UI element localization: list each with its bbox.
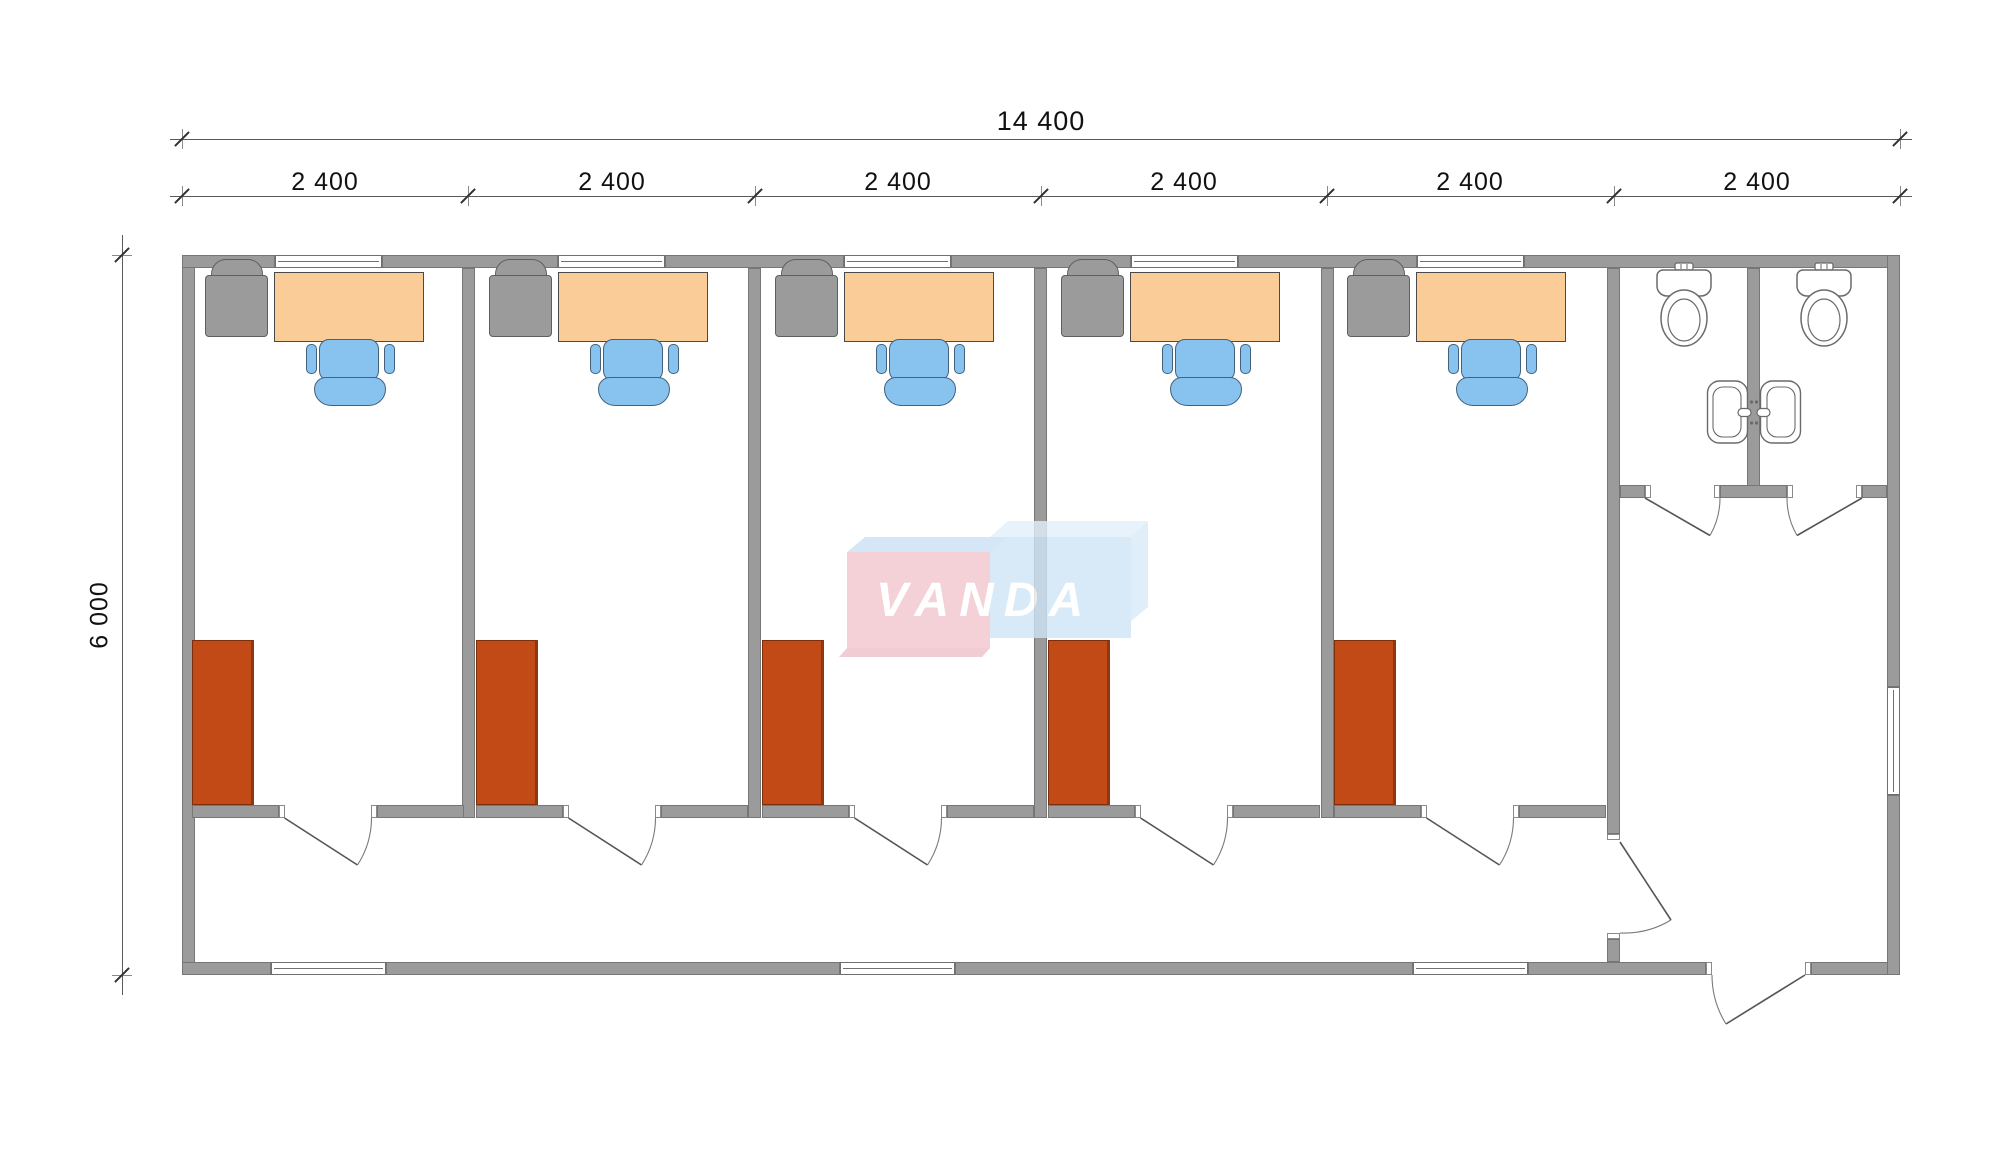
office-chair-back — [598, 377, 670, 406]
side-chair — [1061, 275, 1124, 337]
room-front-wall — [476, 805, 563, 818]
wardrobe — [476, 640, 538, 805]
sink — [1706, 378, 1802, 448]
office-chair-seat — [1175, 339, 1235, 381]
room-front-wall — [377, 805, 464, 818]
room-front-wall — [762, 805, 849, 818]
watermark-text: VANDA — [876, 574, 1093, 627]
vanda-watermark-logo: VANDA — [830, 515, 1150, 665]
side-chair — [775, 275, 838, 337]
office-chair-back — [1170, 377, 1242, 406]
wardrobe — [192, 640, 254, 805]
exterior-wall-right — [1887, 255, 1900, 687]
office-chair-armrest — [590, 344, 601, 374]
dim-line-depth — [122, 235, 123, 995]
desk — [558, 272, 708, 342]
room-door-swing — [562, 812, 674, 874]
office-room-2 — [462, 0, 762, 1000]
office-chair-armrest — [876, 344, 887, 374]
office-chair-armrest — [306, 344, 317, 374]
dim-label-depth: 6 000 — [86, 581, 115, 649]
office-chair-seat — [1461, 339, 1521, 381]
office-chair-seat — [319, 339, 379, 381]
room-door-swing — [278, 812, 390, 874]
desk — [274, 272, 424, 342]
dim-label-module: 2 400 — [1723, 168, 1791, 197]
office-chair-armrest — [954, 344, 965, 374]
office-chair-back — [1456, 377, 1528, 406]
room-front-wall — [192, 805, 279, 818]
window — [1887, 687, 1900, 795]
side-chair — [489, 275, 552, 337]
floor-plan: 14 400 2 400 2 400 2 400 2 400 2 400 2 4… — [0, 0, 2000, 1172]
room-front-wall — [1334, 805, 1421, 818]
wardrobe — [762, 640, 824, 805]
office-room-3 — [748, 0, 1048, 1000]
room-door-swing — [1134, 812, 1246, 874]
wardrobe — [1334, 640, 1396, 805]
desk — [1416, 272, 1566, 342]
desk — [1130, 272, 1280, 342]
lobby-door-swing — [1614, 836, 1684, 940]
office-room-5 — [1320, 0, 1620, 1000]
side-chair — [205, 275, 268, 337]
office-chair-armrest — [1240, 344, 1251, 374]
office-chair-armrest — [668, 344, 679, 374]
side-chair — [1347, 275, 1410, 337]
office-chair-seat — [889, 339, 949, 381]
room-front-wall — [1519, 805, 1606, 818]
toilet — [1649, 262, 1719, 348]
room-front-wall — [661, 805, 748, 818]
room-front-wall — [947, 805, 1034, 818]
room-door-swing — [1420, 812, 1532, 874]
room-front-wall — [1233, 805, 1320, 818]
office-chair-back — [884, 377, 956, 406]
room-door-swing — [848, 812, 960, 874]
office-chair-armrest — [1526, 344, 1537, 374]
office-room-1 — [178, 0, 478, 1000]
room-front-wall — [1048, 805, 1135, 818]
exterior-wall-right — [1887, 795, 1900, 975]
desk — [844, 272, 994, 342]
entrance-door-swing — [1706, 969, 1816, 1030]
toilet — [1789, 262, 1859, 348]
office-chair-armrest — [384, 344, 395, 374]
office-chair-back — [314, 377, 386, 406]
office-chair-armrest — [1448, 344, 1459, 374]
office-chair-armrest — [1162, 344, 1173, 374]
stall-door-swing — [1639, 492, 1731, 544]
office-chair-seat — [603, 339, 663, 381]
office-room-4 — [1034, 0, 1334, 1000]
stall-door-swing — [1781, 492, 1873, 544]
